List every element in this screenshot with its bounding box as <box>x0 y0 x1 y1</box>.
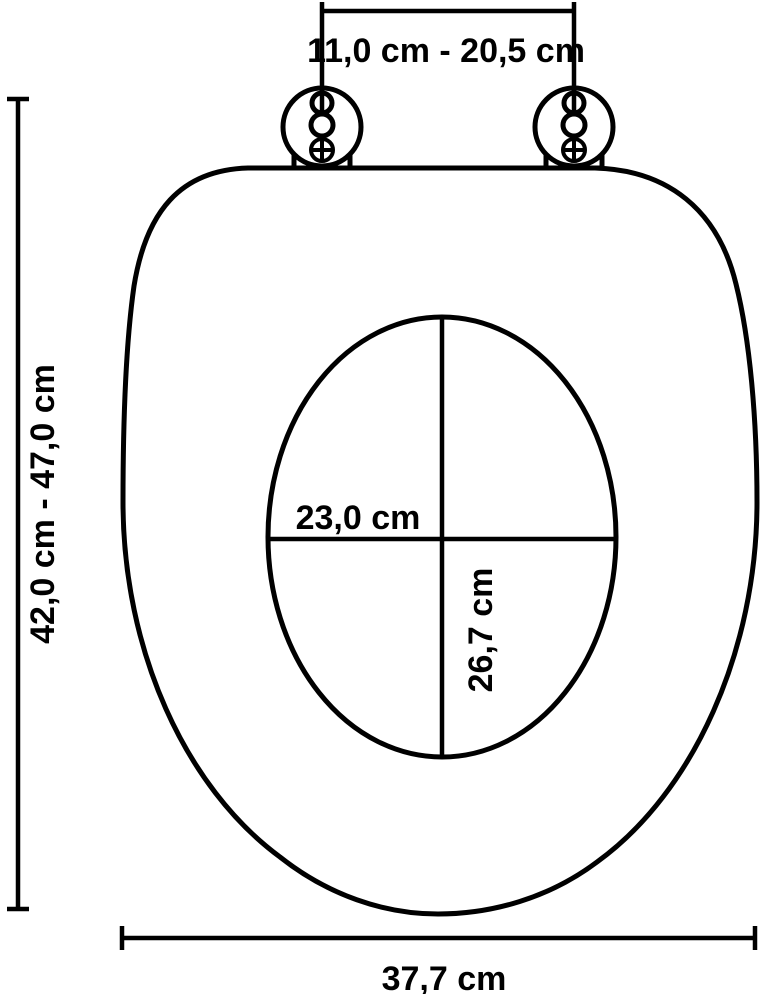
left-hinge-pin-middle <box>311 114 333 136</box>
seat-length-dimension: 42,0 cm - 47,0 cm <box>7 99 62 909</box>
hinge-distance-label: 11,0 cm - 20,5 cm <box>307 32 585 70</box>
toilet-seat-dimension-diagram: 23,0 cm 26,7 cm 11,0 cm - 20,5 cm 42,0 c… <box>0 0 764 994</box>
opening-length-label: 26,7 cm <box>462 568 500 693</box>
seat-opening: 23,0 cm 26,7 cm <box>268 317 616 757</box>
right-hinge-pin-middle <box>563 114 585 136</box>
seat-length-label: 42,0 cm - 47,0 cm <box>24 364 62 644</box>
opening-width-label: 23,0 cm <box>296 499 421 537</box>
seat-width-label: 37,7 cm <box>382 960 507 994</box>
right-hinge-screw-icon <box>563 139 585 161</box>
diagram-canvas: 23,0 cm 26,7 cm 11,0 cm - 20,5 cm 42,0 c… <box>0 0 764 994</box>
seat-width-dimension: 37,7 cm <box>122 926 755 994</box>
left-hinge-screw-icon <box>311 139 333 161</box>
